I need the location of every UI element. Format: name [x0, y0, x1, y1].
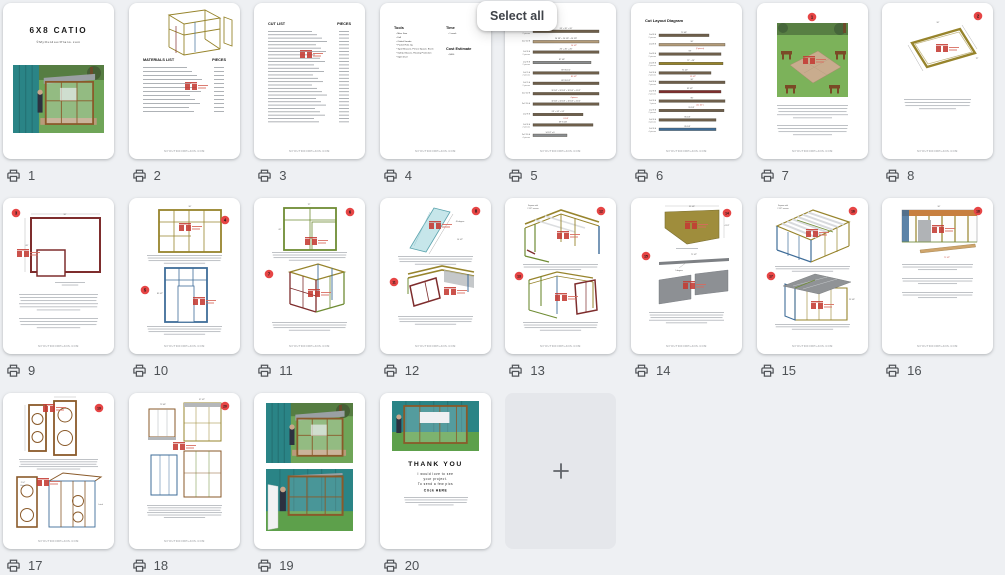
svg-text:14: 14 — [725, 212, 729, 216]
svg-text:To send a few pics: To send a few pics — [418, 482, 453, 486]
svg-text:32 1/4" + 32 1/4" + 32 1/4" +: 32 1/4" + 32 1/4" + 32 1/4" + 4 1/2" — [552, 101, 581, 103]
svg-text:72": 72" — [976, 58, 979, 60]
svg-text:69": 69" — [279, 229, 282, 231]
svg-text:MYOUTDOORPLANS.COM: MYOUTDOORPLANS.COM — [541, 344, 582, 348]
svg-text:8 1/4": 8 1/4" — [564, 118, 569, 120]
page-preview-10: 96"85 1/2"45MYOUTDOORPLANS.COM — [129, 198, 240, 354]
svg-text:2x2 8 ft: 2x2 8 ft — [524, 60, 531, 63]
svg-text:2 pieces: 2 pieces — [523, 127, 530, 129]
page-preview-14: 55 1/4"4 1/2"71 1/2"5-degree1415MYOUTDOO… — [631, 198, 742, 354]
svg-text:4 1/2": 4 1/2" — [725, 225, 730, 227]
svg-text:Latch: Latch — [98, 503, 103, 506]
svg-text:2x2 10 ft: 2x2 10 ft — [522, 102, 530, 105]
svg-text:2x2 8 ft: 2x2 8 ft — [649, 99, 656, 102]
printer-icon — [6, 558, 21, 573]
page-preview-11: 72"69"67MYOUTDOORPLANS.COM — [254, 198, 365, 354]
svg-text:4 pieces: 4 pieces — [571, 97, 578, 99]
svg-text:69" 85 1/2": 69" 85 1/2" — [562, 69, 572, 71]
svg-text:THANK YOU: THANK YOU — [408, 461, 463, 468]
printer-icon — [634, 168, 649, 183]
svg-text:69": 69" — [26, 245, 29, 247]
svg-text:2 pieces: 2 pieces — [649, 37, 656, 39]
svg-text:MYOUTDOORPLANS.COM: MYOUTDOORPLANS.COM — [415, 149, 456, 153]
svg-text:©MyOutdoorPlans.com: ©MyOutdoorPlans.com — [36, 40, 80, 44]
page-number: 13 — [530, 363, 544, 378]
page-number: 18 — [154, 558, 168, 573]
page-number: 1 — [28, 168, 35, 183]
page-preview-3: CUT LISTPIECESMYOUTDOORPLANS.COM — [254, 3, 365, 159]
svg-text:96": 96" — [691, 79, 694, 81]
printer-icon — [257, 168, 272, 183]
svg-text:72": 72" — [308, 204, 311, 206]
svg-text:MYOUTDOORPLANS.COM: MYOUTDOORPLANS.COM — [164, 344, 205, 348]
svg-text:• Tape Measure, Pencil, Square: • Tape Measure, Pencil, Square, Brush — [396, 48, 434, 51]
page-label-14: 14 — [631, 360, 742, 380]
svg-text:32 1/4" + 32 1/4" + 32 1/4" +: 32 1/4" + 32 1/4" + 32 1/4" + 4 1/2" — [552, 90, 581, 92]
svg-text:MYOUTDOORPLANS.COM: MYOUTDOORPLANS.COM — [917, 344, 958, 348]
svg-text:2x2 8 ft: 2x2 8 ft — [649, 90, 656, 93]
svg-text:I would love to see: I would love to see — [417, 472, 453, 476]
page-label-13: 13 — [505, 360, 616, 380]
printer-icon — [383, 168, 398, 183]
svg-text:4 pieces: 4 pieces — [523, 137, 530, 139]
svg-text:14 1/2": 14 1/2" — [457, 239, 463, 241]
svg-text:96": 96" — [691, 98, 694, 100]
svg-text:2 pieces: 2 pieces — [649, 93, 656, 95]
svg-text:96": 96" — [937, 22, 940, 24]
svg-text:Cut Layout Diagram: Cut Layout Diagram — [645, 18, 683, 23]
svg-text:2 pieces: 2 pieces — [523, 54, 530, 56]
page-thumbnail-19[interactable] — [254, 393, 365, 549]
page-label-1: 1 — [3, 165, 114, 185]
svg-text:4 pieces: 4 pieces — [649, 131, 656, 133]
svg-text:2x2 8 ft: 2x2 8 ft — [649, 71, 656, 74]
page-thumbnail-1[interactable]: 6X8 CATIO©MyOutdoorPlans.com — [3, 3, 114, 159]
svg-text:11: 11 — [392, 281, 396, 285]
svg-text:(2x 1/2"): (2x 1/2") — [696, 104, 703, 106]
svg-text:2x2 8 ft: 2x2 8 ft — [649, 108, 656, 111]
svg-text:2 pieces: 2 pieces — [523, 33, 530, 35]
svg-text:71 1/2": 71 1/2" — [944, 257, 950, 259]
svg-text:26 7/8" + 26 7/8" + 26 7/8": 26 7/8" + 26 7/8" + 26 7/8" — [555, 38, 577, 40]
svg-text:2x2 8 ft: 2x2 8 ft — [649, 127, 656, 130]
page-label-7: 7 — [757, 165, 868, 185]
page-number: 8 — [907, 168, 914, 183]
page-preview-16: 96"71 1/2"18MYOUTDOORPLANS.COM — [882, 198, 993, 354]
svg-text:96": 96" — [188, 206, 191, 208]
page-preview-8: 96"72"2MYOUTDOORPLANS.COM — [882, 3, 993, 159]
svg-text:Time: Time — [446, 26, 455, 30]
svg-text:2 1/2" screws: 2 1/2" screws — [777, 207, 788, 210]
svg-text:71" + 24": 71" + 24" — [687, 60, 695, 62]
page-number: 16 — [907, 363, 921, 378]
page-label-15: 15 — [757, 360, 868, 380]
svg-text:PIECES: PIECES — [212, 58, 226, 62]
svg-text:93": 93" — [689, 51, 692, 53]
printer-icon — [132, 363, 147, 378]
svg-text:2x2 8 ft: 2x2 8 ft — [524, 50, 531, 53]
svg-text:4 pieces: 4 pieces — [649, 122, 656, 124]
page-number: 5 — [530, 168, 537, 183]
page-thumbnail-4[interactable]: Tools• Miter Saw• Drill• Orbital Sander•… — [380, 3, 491, 159]
svg-text:16: 16 — [851, 210, 855, 214]
svg-text:2x2 8 ft: 2x2 8 ft — [649, 118, 656, 121]
page-number: 2 — [154, 168, 161, 183]
svg-text:2x2 10 ft: 2x2 10 ft — [522, 92, 530, 95]
page-number: 6 — [656, 168, 663, 183]
svg-text:MYOUTDOORPLANS.COM: MYOUTDOORPLANS.COM — [289, 344, 330, 348]
svg-text:26" + 26" + 26": 26" + 26" + 26" — [560, 28, 573, 30]
svg-text:92 1/2": 92 1/2" — [687, 88, 693, 90]
svg-text:MYOUTDOORPLANS.COM: MYOUTDOORPLANS.COM — [38, 539, 79, 543]
svg-text:18: 18 — [976, 210, 980, 214]
page-grid: 6X8 CATIO©MyOutdoorPlans.com1MATERIALS L… — [3, 3, 993, 575]
svg-text:85 1/4": 85 1/4" — [685, 116, 691, 118]
svg-text:2x4 8 ft: 2x4 8 ft — [649, 43, 656, 46]
page-preview-13: Square with2 1/2" screws1213MYOUTDOORPLA… — [505, 198, 616, 354]
page-label-18: 18 — [129, 555, 240, 575]
page-preview-4: Tools• Miter Saw• Drill• Orbital Sander•… — [380, 3, 491, 159]
page-thumbnail-3[interactable]: CUT LISTPIECESMYOUTDOORPLANS.COM — [254, 3, 365, 159]
svg-text:• Miter Saw: • Miter Saw — [396, 32, 408, 35]
page-thumbnail-15[interactable]: Square with2 1/2" screws23 1/4"1617MYOUT… — [757, 198, 868, 354]
svg-text:7 pieces: 7 pieces — [649, 84, 656, 86]
svg-text:• Safety Glasses, Hearing Prot: • Safety Glasses, Hearing Protection — [396, 52, 432, 55]
svg-text:MYOUTDOORPLANS.COM: MYOUTDOORPLANS.COM — [792, 344, 833, 348]
svg-text:MYOUTDOORPLANS.COM: MYOUTDOORPLANS.COM — [415, 344, 456, 348]
svg-text:15: 15 — [644, 255, 648, 259]
svg-text:MYOUTDOORPLANS.COM: MYOUTDOORPLANS.COM — [917, 149, 958, 153]
svg-text:2 pieces: 2 pieces — [649, 65, 656, 67]
svg-text:85 1/2": 85 1/2" — [571, 76, 577, 78]
svg-text:MYOUTDOORPLANS.COM: MYOUTDOORPLANS.COM — [666, 149, 707, 153]
page-number: 15 — [782, 363, 796, 378]
svg-text:MYOUTDOORPLANS.COM: MYOUTDOORPLANS.COM — [289, 149, 330, 153]
svg-text:20: 20 — [223, 405, 227, 409]
svg-text:71 3/4": 71 3/4" — [681, 32, 687, 34]
svg-text:• Orbital Sander: • Orbital Sander — [396, 40, 412, 43]
svg-text:2 pieces: 2 pieces — [523, 64, 530, 66]
svg-text:1 piece: 1 piece — [650, 103, 657, 105]
svg-text:your project.: your project. — [423, 477, 447, 481]
svg-text:CUT LIST: CUT LIST — [268, 22, 286, 26]
svg-text:17: 17 — [769, 275, 773, 279]
svg-text:2 pieces: 2 pieces — [649, 56, 656, 58]
svg-text:19: 19 — [97, 407, 101, 411]
svg-text:Cost Estimate: Cost Estimate — [446, 47, 471, 51]
svg-text:13: 13 — [518, 275, 522, 279]
page-number: 4 — [405, 168, 412, 183]
page-label-4: 4 — [380, 165, 491, 185]
svg-text:85 1/4": 85 1/4" — [685, 126, 691, 128]
page-thumbnail-2[interactable]: MATERIALS LISTPIECESMYOUTDOORPLANS.COM — [129, 3, 240, 159]
svg-text:PIECES: PIECES — [337, 22, 351, 26]
svg-text:2x2 8 ft: 2x2 8 ft — [524, 112, 531, 115]
page-preview-15: Square with2 1/2" screws23 1/4"1617MYOUT… — [757, 198, 868, 354]
page-preview-6: Cut Layout Diagram2x4 8 ft2 pieces71 3/4… — [631, 3, 742, 159]
svg-text:26" + 26" + 26": 26" + 26" + 26" — [560, 49, 573, 51]
svg-text:• 1 week: • 1 week — [448, 33, 457, 35]
page-preview-7: 1MYOUTDOORPLANS.COM — [757, 3, 868, 159]
page-number: 12 — [405, 363, 419, 378]
page-label-17: 17 — [3, 555, 114, 575]
printer-icon — [6, 363, 21, 378]
svg-text:95 1/4": 95 1/4" — [689, 107, 695, 109]
svg-text:96": 96" — [938, 206, 941, 208]
printer-icon — [6, 168, 21, 183]
svg-text:2x4 8 ft: 2x4 8 ft — [649, 52, 656, 55]
svg-text:2x2 8 ft: 2x2 8 ft — [524, 123, 531, 126]
svg-text:2x2 9 ft: 2x2 9 ft — [524, 71, 531, 74]
svg-text:2x2 10 ft: 2x2 10 ft — [522, 40, 530, 43]
page-thumbnail-12[interactable]: 45-degree14 1/2"811MYOUTDOORPLANS.COM — [380, 198, 491, 354]
svg-text:2 1/2" screws: 2 1/2" screws — [528, 207, 539, 210]
svg-text:69" 8 1/4": 69" 8 1/4" — [559, 121, 568, 123]
page-label-12: 12 — [380, 360, 491, 380]
page-preview-20: THANK YOUI would love to seeyour project… — [380, 393, 491, 549]
page-label-20: 20 — [380, 555, 491, 575]
svg-text:45-degree: 45-degree — [455, 220, 464, 223]
page-thumbnail-14[interactable]: 55 1/4"4 1/2"71 1/2"5-degree1415MYOUTDOO… — [631, 198, 742, 354]
page-label-11: 11 — [254, 360, 365, 380]
page-thumbnail-16[interactable]: 96"71 1/2"18MYOUTDOORPLANS.COM — [882, 198, 993, 354]
svg-text:24" + 24" + 24": 24" + 24" + 24" — [552, 111, 565, 113]
svg-text:2x2 8 ft: 2x2 8 ft — [649, 80, 656, 83]
svg-text:MYOUTDOORPLANS.COM: MYOUTDOORPLANS.COM — [164, 149, 205, 153]
add-page-tile[interactable] — [505, 393, 616, 549]
printer-icon — [383, 363, 398, 378]
printer-icon — [132, 558, 147, 573]
svg-text:2 pieces: 2 pieces — [649, 112, 656, 114]
svg-text:71 1/2": 71 1/2" — [682, 69, 688, 71]
svg-text:55 1/4": 55 1/4" — [689, 206, 695, 208]
svg-text:Click HERE: Click HERE — [424, 489, 448, 493]
svg-text:2x2 10 ft: 2x2 10 ft — [522, 133, 530, 136]
page-preview-9: 96"69"3MYOUTDOORPLANS.COM — [3, 198, 114, 354]
svg-text:2x2 9 ft: 2x2 9 ft — [524, 81, 531, 84]
page-label-6: 6 — [631, 165, 742, 185]
printer-icon — [760, 363, 775, 378]
page-label-19: 19 — [254, 555, 365, 575]
page-label-9: 9 — [3, 360, 114, 380]
svg-text:• $400: • $400 — [448, 54, 455, 56]
printer-icon — [257, 558, 272, 573]
page-number: 10 — [154, 363, 168, 378]
page-number: 11 — [279, 363, 293, 378]
page-preview-19 — [254, 393, 365, 549]
page-thumbnail-11[interactable]: 72"69"67MYOUTDOORPLANS.COM — [254, 198, 365, 354]
svg-text:• Spirit level: • Spirit level — [396, 55, 408, 58]
page-thumbnail-8[interactable]: 96"72"2MYOUTDOORPLANS.COM — [882, 3, 993, 159]
svg-text:2 pieces: 2 pieces — [523, 75, 530, 77]
page-label-8: 8 — [882, 165, 993, 185]
svg-text:MATERIALS LIST: MATERIALS LIST — [143, 58, 175, 62]
printer-icon — [885, 363, 900, 378]
svg-text:72 3/4": 72 3/4" — [160, 404, 166, 406]
svg-text:2"x2": 2"x2" — [21, 482, 26, 484]
page-number: 3 — [279, 168, 286, 183]
svg-text:• Pocket Hole Jig: • Pocket Hole Jig — [396, 44, 413, 47]
svg-text:14 1/2": 14 1/2" — [571, 45, 577, 47]
svg-text:96": 96" — [64, 214, 67, 216]
svg-text:23 1/4": 23 1/4" — [849, 299, 855, 301]
svg-text:71 1/2": 71 1/2" — [691, 254, 697, 256]
printer-icon — [383, 558, 398, 573]
svg-text:6X8 CATIO: 6X8 CATIO — [30, 26, 88, 35]
page-preview-2: MATERIALS LISTPIECESMYOUTDOORPLANS.COM — [129, 3, 240, 159]
page-thumbnail-20[interactable]: THANK YOUI would love to seeyour project… — [380, 393, 491, 549]
printer-icon — [885, 168, 900, 183]
svg-text:Square with: Square with — [528, 204, 538, 207]
svg-text:MYOUTDOORPLANS.COM: MYOUTDOORPLANS.COM — [541, 149, 582, 153]
svg-text:69" 85 1/2": 69" 85 1/2" — [562, 80, 572, 82]
page-preview-17: Latch2"x2"Hinge19MYOUTDOORPLANS.COM — [3, 393, 114, 549]
page-thumbnail-17[interactable]: Latch2"x2"Hinge19MYOUTDOORPLANS.COM — [3, 393, 114, 549]
page-label-5: 5 — [505, 165, 616, 185]
printer-icon — [132, 168, 147, 183]
page-thumbnail-18[interactable]: 72 3/4"97 1/2"20MYOUTDOORPLANS.COM — [129, 393, 240, 549]
svg-text:Tools: Tools — [394, 26, 404, 30]
svg-text:2 pieces: 2 pieces — [649, 75, 656, 77]
page-number: 19 — [279, 558, 293, 573]
svg-text:85 1/2": 85 1/2" — [157, 293, 163, 295]
svg-text:• Drill: • Drill — [396, 36, 402, 39]
svg-text:5-degree: 5-degree — [675, 269, 683, 272]
page-preview-18: 72 3/4"97 1/2"20MYOUTDOORPLANS.COM — [129, 393, 240, 549]
page-number: 7 — [782, 168, 789, 183]
page-number: 20 — [405, 558, 419, 573]
page-thumbnail-13[interactable]: Square with2 1/2" screws1213MYOUTDOORPLA… — [505, 198, 616, 354]
svg-text:MYOUTDOORPLANS.COM: MYOUTDOORPLANS.COM — [792, 149, 833, 153]
page-label-3: 3 — [254, 165, 365, 185]
page-preview-1: 6X8 CATIO©MyOutdoorPlans.com — [3, 3, 114, 159]
svg-text:MYOUTDOORPLANS.COM: MYOUTDOORPLANS.COM — [38, 344, 79, 348]
page-number: 17 — [28, 558, 42, 573]
page-thumbnail-6[interactable]: Cut Layout Diagram2x4 8 ft2 pieces71 3/4… — [631, 3, 742, 159]
svg-text:87 1/4": 87 1/4" — [559, 59, 565, 61]
page-thumbnail-10[interactable]: 96"85 1/2"45MYOUTDOORPLANS.COM — [129, 198, 240, 354]
page-preview-12: 45-degree14 1/2"811MYOUTDOORPLANS.COM — [380, 198, 491, 354]
svg-text:14 1/2" x 8: 14 1/2" x 8 — [546, 132, 555, 134]
svg-text:Hinge: Hinge — [21, 485, 26, 487]
svg-text:2x4 8 ft: 2x4 8 ft — [649, 61, 656, 64]
page-number: 9 — [28, 363, 35, 378]
page-label-16: 16 — [882, 360, 993, 380]
page-thumbnail-7[interactable]: 1MYOUTDOORPLANS.COM — [757, 3, 868, 159]
svg-text:MYOUTDOORPLANS.COM: MYOUTDOORPLANS.COM — [666, 344, 707, 348]
printer-icon — [257, 363, 272, 378]
printer-icon — [760, 168, 775, 183]
plus-icon — [551, 461, 571, 481]
svg-text:97 1/2": 97 1/2" — [199, 399, 205, 401]
select-all-button[interactable]: Select all — [477, 1, 557, 31]
svg-text:2 pieces: 2 pieces — [523, 85, 530, 87]
svg-text:(2 pieces): (2 pieces) — [696, 48, 705, 50]
printer-icon — [508, 168, 523, 183]
page-label-10: 10 — [129, 360, 240, 380]
svg-text:12: 12 — [600, 210, 604, 214]
svg-text:2x4 8 ft: 2x4 8 ft — [649, 33, 656, 36]
svg-text:MYOUTDOORPLANS.COM: MYOUTDOORPLANS.COM — [164, 539, 205, 543]
page-label-2: 2 — [129, 165, 240, 185]
page-number: 14 — [656, 363, 670, 378]
printer-icon — [634, 363, 649, 378]
page-thumbnail-9[interactable]: 96"69"3MYOUTDOORPLANS.COM — [3, 198, 114, 354]
svg-text:Square with: Square with — [778, 204, 788, 207]
printer-icon — [508, 363, 523, 378]
svg-text:96": 96" — [691, 41, 694, 43]
